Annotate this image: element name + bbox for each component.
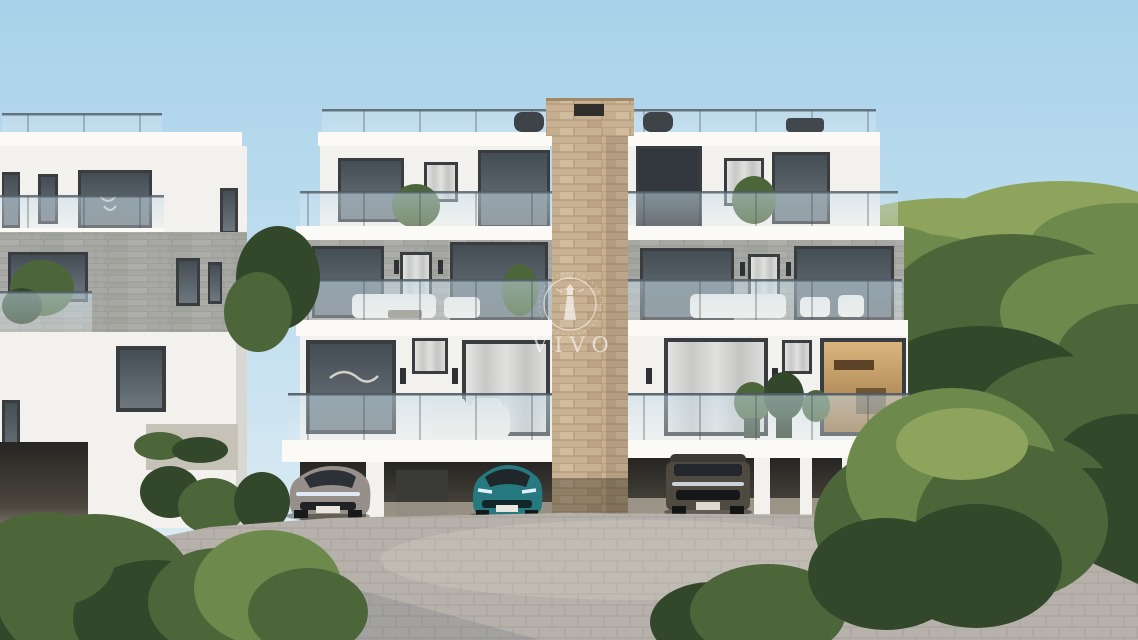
wheel — [730, 506, 744, 514]
rail-bar — [628, 279, 902, 282]
chimney-cap — [546, 98, 634, 136]
license-plate — [496, 505, 518, 512]
balcony-railing-posts — [288, 394, 552, 446]
led-light-bar — [672, 482, 744, 486]
dark-suv — [664, 454, 752, 517]
rail-bar — [0, 195, 164, 198]
rail-bar — [300, 191, 552, 194]
slab-fascia — [296, 320, 552, 336]
led-light-bar — [296, 492, 360, 496]
rail-bar — [2, 113, 162, 116]
wall-sconce — [452, 368, 458, 384]
wall-sconce — [646, 368, 652, 384]
stone-chimney-core — [546, 98, 634, 530]
tree-canopy-sunlit — [896, 408, 1028, 480]
deck-slab — [282, 440, 552, 462]
slab-fascia — [628, 226, 904, 240]
wall-sconce — [394, 260, 399, 274]
windshield — [674, 464, 742, 476]
roof-fascia — [0, 132, 242, 146]
watermark-brand-text: VIVO — [531, 333, 615, 357]
balcony-glass-railing — [0, 292, 92, 332]
window — [223, 191, 235, 231]
license-plate — [696, 502, 720, 510]
slab-fascia — [296, 226, 552, 240]
slab-fascia — [628, 320, 908, 336]
roof-equipment — [786, 118, 824, 132]
balcony-railing-posts — [628, 280, 902, 324]
balcony-railing-posts — [298, 280, 552, 324]
architectural-render: VIVO — [0, 0, 1138, 640]
chimney-cap-edge — [546, 98, 634, 101]
rail-bar — [628, 191, 898, 194]
wall-sconce — [438, 260, 443, 274]
wheel — [294, 510, 308, 518]
wall-sconce — [740, 262, 745, 276]
twin-apartment-block — [282, 98, 918, 532]
tree-canopy — [890, 504, 1062, 628]
terrace-railing-posts — [300, 192, 552, 226]
wheel — [672, 506, 686, 514]
wheel — [348, 510, 362, 518]
rail-bar — [628, 393, 910, 396]
wall-sconce — [400, 368, 406, 384]
terrace-railing-posts — [628, 192, 898, 226]
tree-between-buildings — [224, 272, 292, 352]
roof-fascia-left — [318, 132, 552, 146]
lighthouse-lamp — [567, 290, 573, 295]
window — [210, 265, 220, 301]
rail-bar — [298, 279, 552, 282]
kitchen-cabinets — [834, 360, 874, 370]
window — [785, 343, 809, 371]
window — [179, 261, 197, 303]
chimney-vent — [574, 104, 604, 116]
window — [120, 350, 162, 408]
rail-bar — [0, 291, 92, 294]
solar-water-heater — [643, 112, 673, 132]
rail-bar — [288, 393, 552, 396]
window — [415, 341, 445, 371]
grille — [676, 490, 740, 500]
license-plate — [316, 506, 340, 513]
hanging-plants — [172, 437, 228, 463]
balcony-railing-posts — [0, 196, 164, 232]
wall-sconce — [786, 262, 791, 276]
solar-water-heater — [514, 112, 544, 132]
roof-fascia-right — [628, 132, 880, 146]
